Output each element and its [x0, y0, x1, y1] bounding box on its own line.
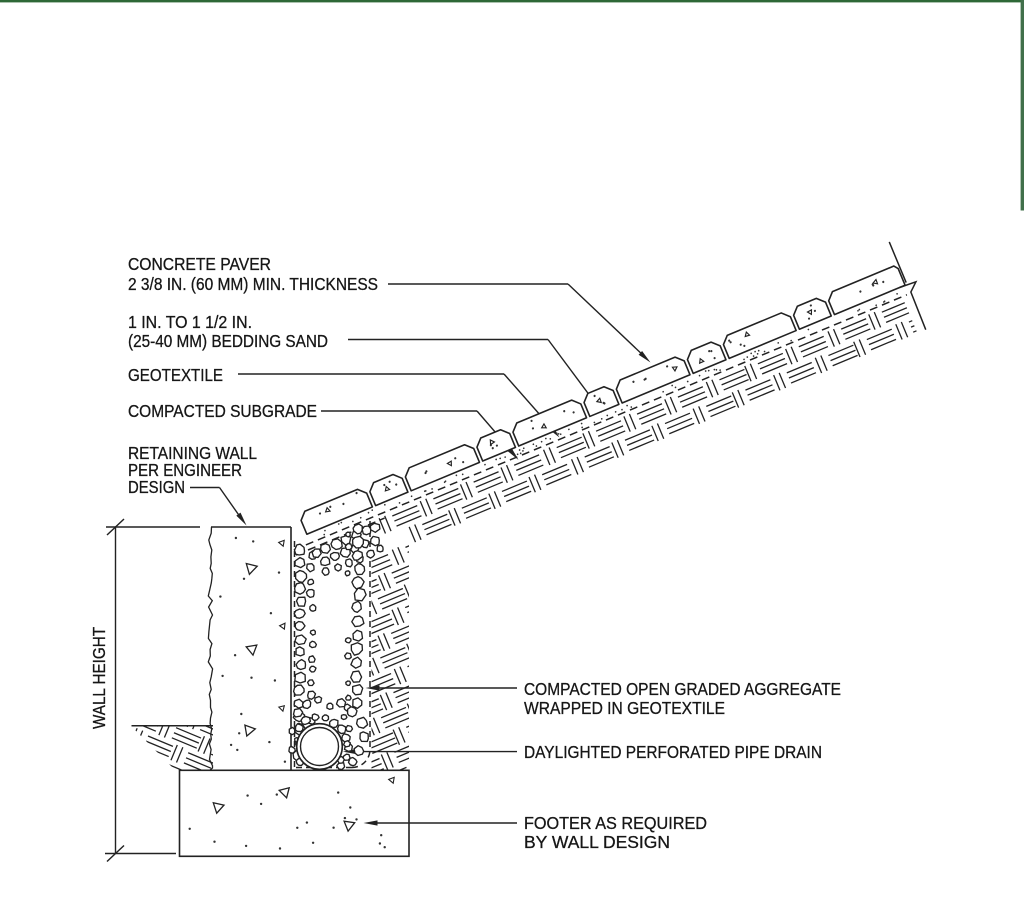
svg-text:BY WALL DESIGN: BY WALL DESIGN	[524, 832, 670, 852]
svg-text:WRAPPED IN GEOTEXTILE: WRAPPED IN GEOTEXTILE	[524, 698, 725, 718]
svg-text:DESIGN: DESIGN	[128, 477, 185, 497]
svg-text:COMPACTED OPEN GRADED AGGREGAT: COMPACTED OPEN GRADED AGGREGATE	[524, 679, 841, 699]
svg-text:COMPACTED SUBGRADE: COMPACTED SUBGRADE	[128, 401, 317, 421]
svg-text:CONCRETE PAVER: CONCRETE PAVER	[128, 254, 271, 274]
svg-text:FOOTER AS REQUIRED: FOOTER AS REQUIRED	[524, 813, 707, 833]
svg-text:DAYLIGHTED PERFORATED PIPE DRA: DAYLIGHTED PERFORATED PIPE DRAIN	[524, 742, 822, 762]
svg-text:WALL HEIGHT: WALL HEIGHT	[89, 627, 109, 729]
svg-text:GEOTEXTILE: GEOTEXTILE	[128, 365, 223, 385]
svg-text:1 IN. TO 1 1/2 IN.: 1 IN. TO 1 1/2 IN.	[128, 312, 252, 332]
svg-text:(25-40 MM) BEDDING SAND: (25-40 MM) BEDDING SAND	[128, 331, 328, 351]
svg-text:2 3/8 IN. (60 MM) MIN. THICKNE: 2 3/8 IN. (60 MM) MIN. THICKNESS	[128, 274, 378, 294]
